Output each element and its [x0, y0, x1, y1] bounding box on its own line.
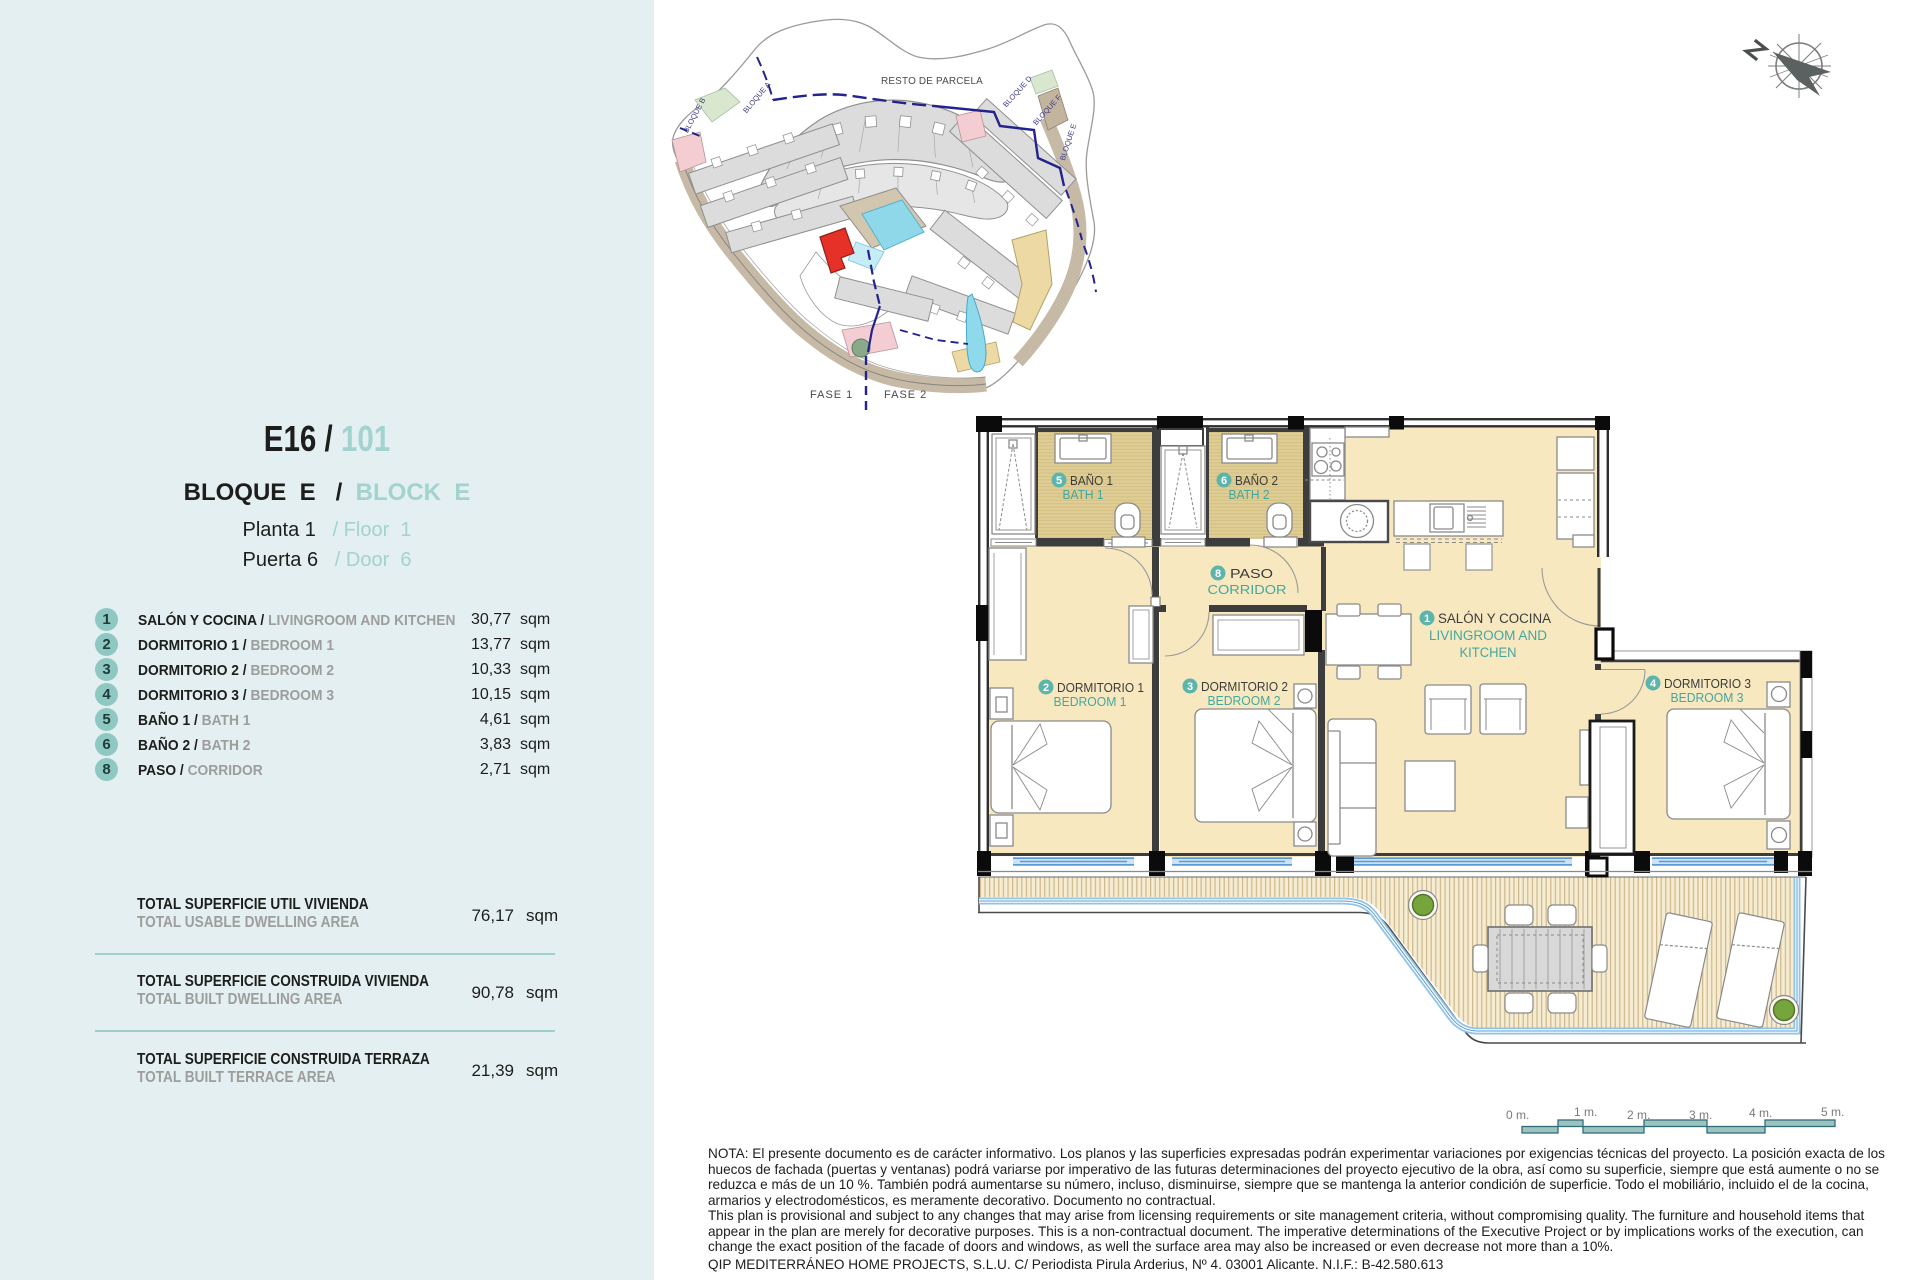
svg-text:2: 2 [1043, 682, 1049, 694]
svg-text:5 m.: 5 m. [1821, 1105, 1844, 1119]
svg-text:BAÑO 2: BAÑO 2 [1235, 473, 1278, 488]
svg-text:DORMITORIO 1: DORMITORIO 1 [1057, 680, 1144, 695]
svg-text:BATH 2: BATH 2 [1229, 487, 1270, 502]
svg-text:6: 6 [1221, 475, 1227, 487]
svg-text:PASO: PASO [1230, 566, 1273, 581]
svg-text:SALÓN Y COCINA: SALÓN Y COCINA [1438, 611, 1551, 626]
svg-text:DORMITORIO 2: DORMITORIO 2 [1201, 679, 1288, 694]
svg-text:BEDROOM 2: BEDROOM 2 [1208, 693, 1281, 708]
svg-text:BEDROOM 3: BEDROOM 3 [1671, 690, 1744, 705]
svg-text:KITCHEN: KITCHEN [1460, 645, 1517, 660]
svg-text:1 m.: 1 m. [1574, 1105, 1597, 1119]
svg-text:BEDROOM 1: BEDROOM 1 [1054, 694, 1127, 709]
svg-text:BAÑO 1: BAÑO 1 [1070, 473, 1113, 488]
svg-text:8: 8 [1215, 568, 1221, 580]
svg-text:3 m.: 3 m. [1689, 1108, 1712, 1122]
svg-text:LIVINGROOM AND: LIVINGROOM AND [1429, 628, 1547, 643]
svg-text:5: 5 [1056, 475, 1062, 487]
svg-text:FASE 1: FASE 1 [810, 389, 853, 401]
svg-text:DORMITORIO 3: DORMITORIO 3 [1664, 676, 1751, 691]
svg-text:0 m.: 0 m. [1506, 1108, 1529, 1122]
svg-text:3: 3 [1187, 681, 1193, 693]
svg-text:2 m.: 2 m. [1627, 1108, 1650, 1122]
svg-text:4 m.: 4 m. [1749, 1106, 1772, 1120]
svg-text:1: 1 [1424, 613, 1430, 625]
svg-text:4: 4 [1650, 678, 1657, 690]
svg-text:FASE 2: FASE 2 [884, 389, 927, 401]
svg-text:CORRIDOR: CORRIDOR [1208, 582, 1287, 597]
svg-text:BATH 1: BATH 1 [1063, 487, 1104, 502]
svg-text:RESTO DE PARCELA: RESTO DE PARCELA [881, 75, 983, 87]
